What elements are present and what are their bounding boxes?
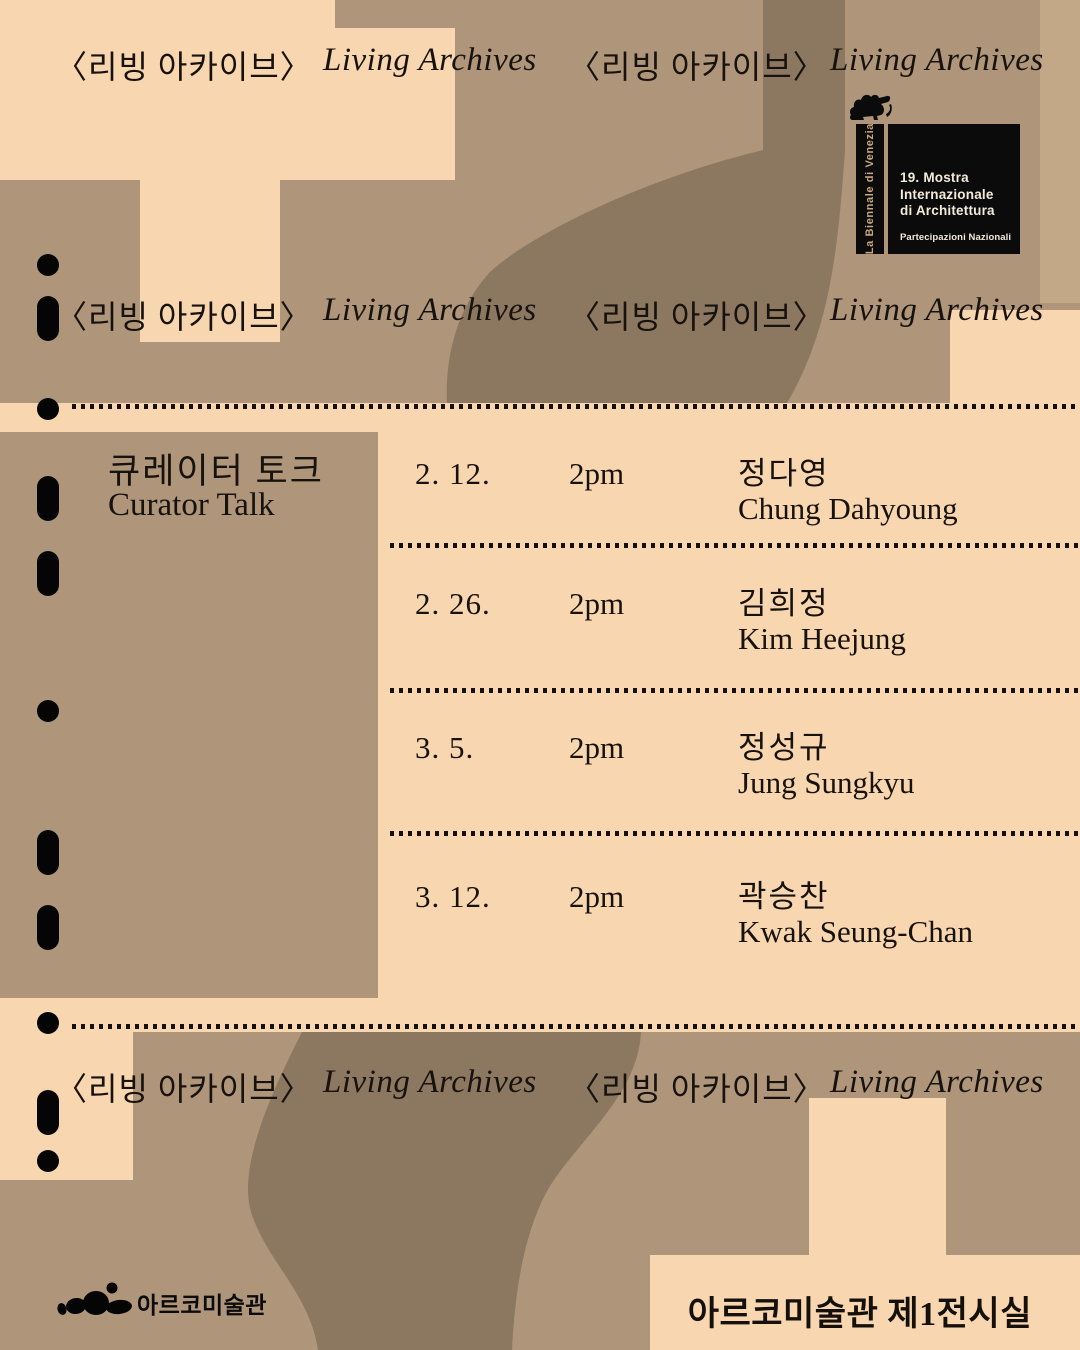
- perforation-dot: [37, 551, 59, 596]
- marquee-title-en: Living Archives: [323, 42, 537, 79]
- speaker-name-ko: 김희정: [738, 586, 906, 621]
- separator-line-2: [390, 543, 1078, 548]
- marquee-title-ko: 〈리빙 아카이브〉: [568, 1064, 826, 1110]
- marquee-title-en: Living Archives: [830, 42, 1044, 79]
- arko-logo-text: 아르코미술관: [137, 1286, 267, 1320]
- speaker-name-en: Kim Heejung: [738, 621, 906, 656]
- biennale-subtitle: Partecipazioni Nazionali: [900, 232, 1012, 243]
- marquee-band-middle: 〈리빙 아카이브〉 Living Archives 〈리빙 아카이브〉 Livi…: [0, 292, 1080, 332]
- session-speaker: 정성규 Jung Sungkyu: [738, 730, 915, 800]
- speaker-name-ko: 정다영: [738, 456, 958, 491]
- marquee-title-en: Living Archives: [830, 292, 1044, 329]
- marquee-title-ko: 〈리빙 아카이브〉: [568, 292, 826, 338]
- biennale-title-line: di Architettura: [900, 203, 1012, 220]
- marquee-title-ko: 〈리빙 아카이브〉: [55, 1064, 313, 1110]
- marquee-title-ko: 〈리빙 아카이브〉: [55, 292, 313, 338]
- perforation-dot: [37, 905, 59, 950]
- marquee-band-top: 〈리빙 아카이브〉 Living Archives 〈리빙 아카이브〉 Livi…: [0, 42, 1080, 82]
- biennale-vertical-label: La Biennale di Venezia: [864, 123, 876, 254]
- marquee-title-en: Living Archives: [323, 292, 537, 329]
- perforation-dot: [37, 1150, 59, 1172]
- speaker-name-en: Jung Sungkyu: [738, 765, 915, 800]
- perforation-dot: [37, 254, 59, 276]
- perforation-dot: [37, 1012, 59, 1034]
- perforation-dot: [37, 398, 59, 420]
- marquee-title-ko: 〈리빙 아카이브〉: [55, 42, 313, 88]
- arko-pebbles-icon: [55, 1276, 137, 1322]
- session-speaker: 곽승찬 Kwak Seung-Chan: [738, 879, 973, 949]
- venue-label: 아르코미술관 제1전시실: [640, 1286, 1032, 1335]
- perforation-dot: [37, 700, 59, 722]
- poster-canvas: 〈리빙 아카이브〉 Living Archives 〈리빙 아카이브〉 Livi…: [0, 0, 1080, 1350]
- marquee-title-en: Living Archives: [323, 1064, 537, 1101]
- separator-line-4: [390, 831, 1078, 836]
- session-speaker: 정다영 Chung Dahyoung: [738, 456, 958, 526]
- speaker-name-en: Chung Dahyoung: [738, 491, 958, 526]
- session-date: 2. 26.: [415, 586, 491, 622]
- program-title-en: Curator Talk: [108, 487, 275, 524]
- bg-cream-cross-vertical: [809, 1098, 946, 1258]
- session-speaker: 김희정 Kim Heejung: [738, 586, 906, 656]
- speaker-name-ko: 곽승찬: [738, 879, 973, 914]
- perforation-dot: [37, 476, 59, 521]
- separator-line-1: [72, 404, 1078, 409]
- speaker-name-ko: 정성규: [738, 730, 915, 765]
- session-time: 2pm: [569, 730, 624, 766]
- session-time: 2pm: [569, 586, 624, 622]
- marquee-band-bottom: 〈리빙 아카이브〉 Living Archives 〈리빙 아카이브〉 Livi…: [0, 1064, 1080, 1104]
- biennale-vertical-banner: La Biennale di Venezia: [856, 124, 884, 254]
- session-date: 3. 12.: [415, 879, 491, 915]
- session-time: 2pm: [569, 456, 624, 492]
- session-time: 2pm: [569, 879, 624, 915]
- separator-line-3: [390, 688, 1078, 693]
- biennale-title-line: 19. Mostra: [900, 170, 1012, 187]
- session-date: 3. 5.: [415, 730, 474, 766]
- speaker-name-en: Kwak Seung-Chan: [738, 914, 973, 949]
- marquee-title-ko: 〈리빙 아카이브〉: [568, 42, 826, 88]
- biennale-title-line: Internazionale: [900, 187, 1012, 204]
- separator-line-5: [72, 1024, 1078, 1029]
- perforation-dot: [37, 830, 59, 875]
- biennale-lion-icon: [846, 92, 892, 124]
- marquee-title-en: Living Archives: [830, 1064, 1044, 1101]
- biennale-panel: 19. Mostra Internazionale di Architettur…: [888, 124, 1020, 254]
- session-date: 2. 12.: [415, 456, 491, 492]
